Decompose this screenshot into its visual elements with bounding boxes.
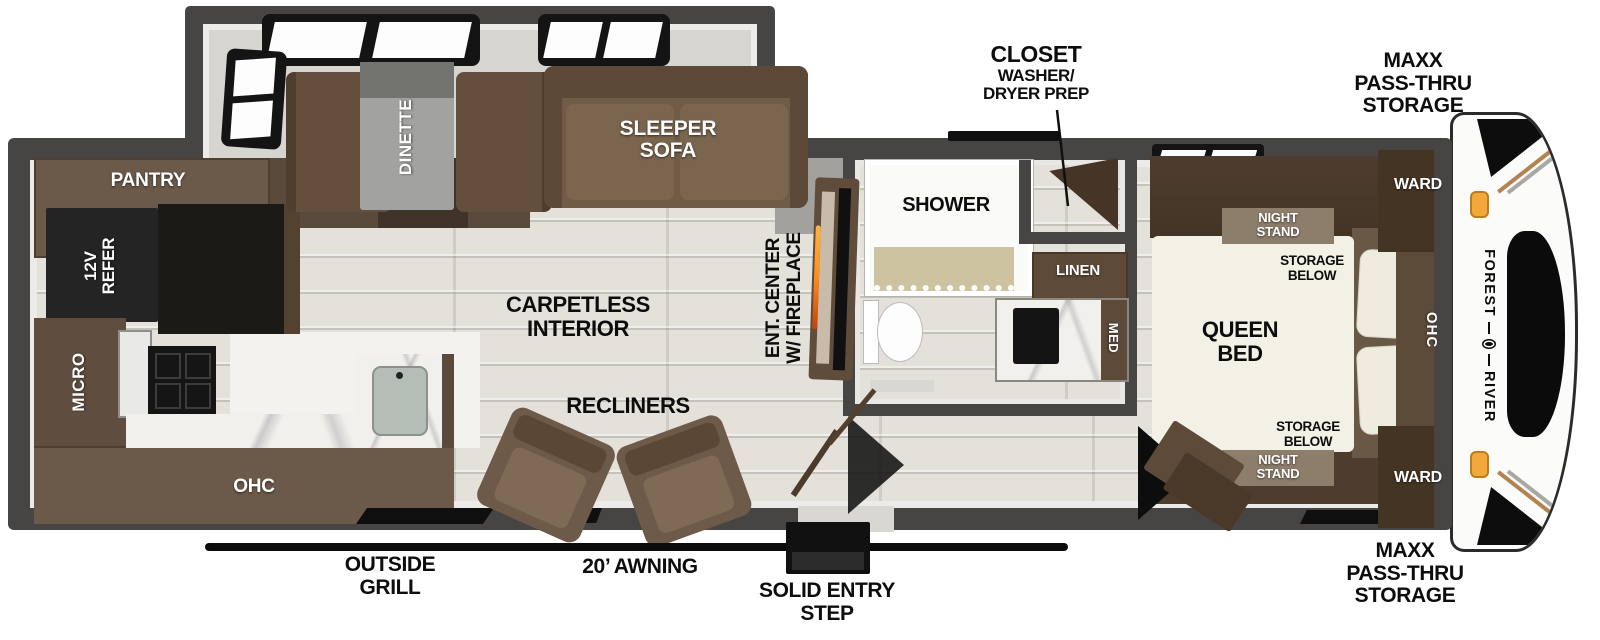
burner — [155, 353, 181, 379]
sofa-arm-left — [544, 66, 562, 208]
med-label: MED — [1104, 308, 1120, 368]
tv-screen — [833, 188, 851, 370]
range-cabinet — [158, 204, 300, 334]
closet-callout: CLOSET WASHER/ DRYER PREP — [941, 42, 1131, 104]
bath-door-opening — [870, 380, 934, 392]
island-edge — [442, 354, 454, 448]
bath-sink — [1013, 308, 1059, 364]
pantry-label: PANTRY — [58, 171, 238, 191]
shower-pan — [874, 247, 1014, 291]
nightstand-top-label: NIGHT STAND — [1222, 211, 1334, 238]
step-tread — [792, 552, 864, 570]
slide-window-1 — [262, 14, 480, 66]
burner — [155, 383, 181, 409]
slide-window-2 — [538, 14, 670, 66]
ward-top-label: WARD — [1380, 177, 1456, 194]
brand-dash — [1488, 354, 1490, 366]
bedroom-ohc-label: OHC — [1421, 290, 1439, 370]
brand-word-river: RIVER — [1481, 371, 1497, 423]
carpetless-label: CARPETLESS INTERIOR — [468, 293, 688, 341]
queen-bed-label: QUEEN BED — [1160, 318, 1320, 366]
brand-word-forest: FOREST — [1481, 249, 1497, 317]
sofa-back — [544, 66, 808, 98]
awning-line — [205, 543, 1068, 551]
faucet — [396, 372, 403, 379]
outside-grill-label: OUTSIDE GRILL — [290, 554, 490, 599]
shower — [865, 160, 1033, 296]
entry-step — [786, 522, 870, 574]
solid-entry-step-label: SOLID ENTRY STEP — [727, 580, 927, 625]
closet-wall-h — [1019, 232, 1137, 244]
rv-floorplan: PANTRY 12V REFER MICRO OHC DINETTE — [0, 0, 1600, 640]
wall-oven — [118, 330, 152, 418]
kitchen-sink — [372, 366, 428, 436]
dinette-label: DINETTE — [397, 67, 417, 207]
burner — [185, 353, 211, 379]
front-cap — [1450, 112, 1578, 552]
sofa-label: SLEEPER SOFA — [568, 118, 768, 162]
cap-windshield — [1507, 231, 1565, 437]
wardrobe-top — [1378, 150, 1434, 252]
kitchen-ohc-label: OHC — [194, 477, 314, 497]
slide-side-window — [221, 48, 288, 150]
refer-label: 12V REFER — [82, 214, 122, 318]
front-storage-top-label: MAXX PASS-THRU STORAGE — [1313, 50, 1513, 118]
dinette-booth-right — [456, 72, 552, 212]
cap-marker-light-bottom — [1470, 451, 1489, 478]
entertainment-center — [808, 177, 859, 380]
cooktop — [148, 346, 216, 414]
micro-label: MICRO — [70, 322, 90, 442]
range-cabinet-edge — [284, 204, 300, 334]
brand-logotype: FOREST RIVER — [1480, 241, 1498, 431]
burner — [185, 383, 211, 409]
brand-dash — [1488, 322, 1490, 334]
forest-river-emblem — [1482, 339, 1496, 349]
awning-label: 20’ AWNING — [540, 556, 740, 579]
baggage-door — [356, 508, 494, 524]
linen-label: LINEN — [1032, 263, 1124, 279]
recliners-label: RECLINERS — [518, 394, 738, 418]
shower-label: SHOWER — [876, 195, 1016, 217]
nightstand-bottom-label: NIGHT STAND — [1222, 453, 1334, 480]
ent-center-label: ENT. CENTER W/ FIREPLACE — [764, 208, 808, 388]
toilet-bowl — [877, 302, 923, 362]
storage-below-top-label: STORAGE BELOW — [1252, 254, 1372, 283]
storage-below-bottom-label: STORAGE BELOW — [1248, 420, 1368, 449]
roof-vent — [948, 131, 1060, 141]
front-storage-bottom-label: MAXX PASS-THRU STORAGE — [1305, 540, 1505, 608]
sofa-arm-right — [790, 66, 808, 208]
ward-bottom-label: WARD — [1380, 470, 1456, 487]
cap-marker-light-top — [1470, 191, 1489, 218]
